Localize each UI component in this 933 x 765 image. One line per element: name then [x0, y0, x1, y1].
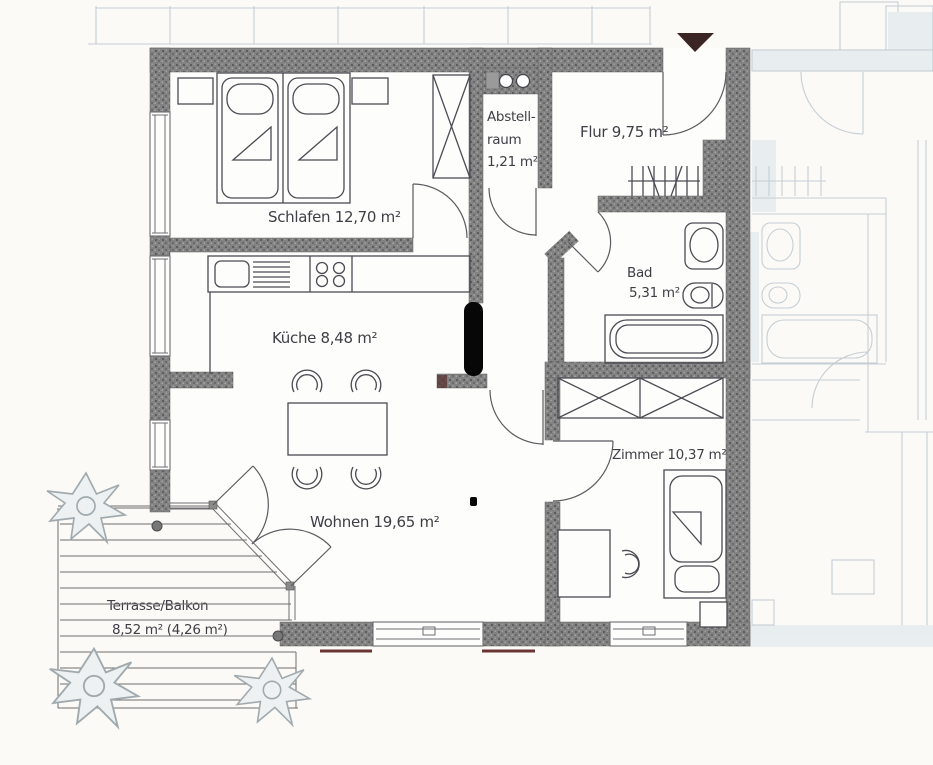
wall-left-2	[150, 236, 170, 256]
corner-post	[152, 521, 162, 531]
redaction-mark	[464, 302, 483, 376]
double-bed	[217, 73, 350, 203]
scan-mark	[437, 375, 447, 388]
pillow	[227, 84, 273, 114]
nightstand	[700, 602, 727, 627]
schlafen-label: Schlafen 12,70 m²	[268, 208, 401, 226]
window-wohnen-west	[150, 420, 170, 470]
kueche-label: Küche 8,48 m²	[272, 329, 378, 347]
wall-center-vertical	[469, 48, 483, 303]
wall-bad-west	[548, 258, 564, 362]
nightstand	[178, 78, 213, 104]
wall-schlafen-south	[170, 238, 413, 252]
wall-top	[150, 48, 663, 72]
wall-bad-north	[598, 196, 728, 212]
window-kueche-west	[150, 256, 170, 356]
scanned-floor-plan-page: Schlafen 12,70 m² Abstell- raum 1,21 m² …	[0, 0, 933, 765]
abstellraum-label-line3: 1,21 m²	[487, 154, 538, 170]
service-shaft	[486, 72, 499, 89]
bad-area-label: 5,31 m²	[629, 285, 680, 301]
single-bed	[664, 470, 726, 598]
door-hinge-post	[286, 582, 294, 590]
wall-right	[726, 48, 750, 646]
dining-table	[288, 403, 387, 455]
wall-abstellraum-east	[538, 48, 552, 188]
terrasse-label: Terrasse/Balkon	[106, 598, 208, 614]
desk	[558, 530, 610, 597]
zimmer-label: Zimmer 10,37 m²	[612, 447, 726, 463]
pipe-icon	[500, 75, 513, 88]
window-schlafen-west	[150, 112, 170, 236]
wall-bad-south	[545, 362, 750, 378]
bad-label: Bad	[627, 265, 652, 281]
wall-left-1	[150, 48, 170, 112]
floor-plan-svg: Schlafen 12,70 m² Abstell- raum 1,21 m² …	[0, 0, 933, 765]
redaction-mark-small	[470, 497, 477, 506]
abstellraum-label-line1: Abstell-	[487, 109, 536, 125]
wall-kitchen-stub	[170, 372, 233, 388]
wall-left-3	[150, 356, 170, 420]
nightstand	[352, 78, 388, 104]
window-wohnen-south	[373, 622, 483, 646]
window-zimmer-south	[610, 622, 687, 646]
wall-left-4	[150, 470, 170, 512]
flur-label: Flur 9,75 m²	[580, 123, 669, 141]
wall-bottom-a	[280, 622, 373, 646]
abstellraum-label-line2: raum	[487, 132, 521, 148]
pillow	[293, 84, 339, 114]
pipe-icon	[517, 75, 530, 88]
wohnen-label: Wohnen 19,65 m²	[310, 513, 440, 531]
pillow	[675, 566, 719, 592]
